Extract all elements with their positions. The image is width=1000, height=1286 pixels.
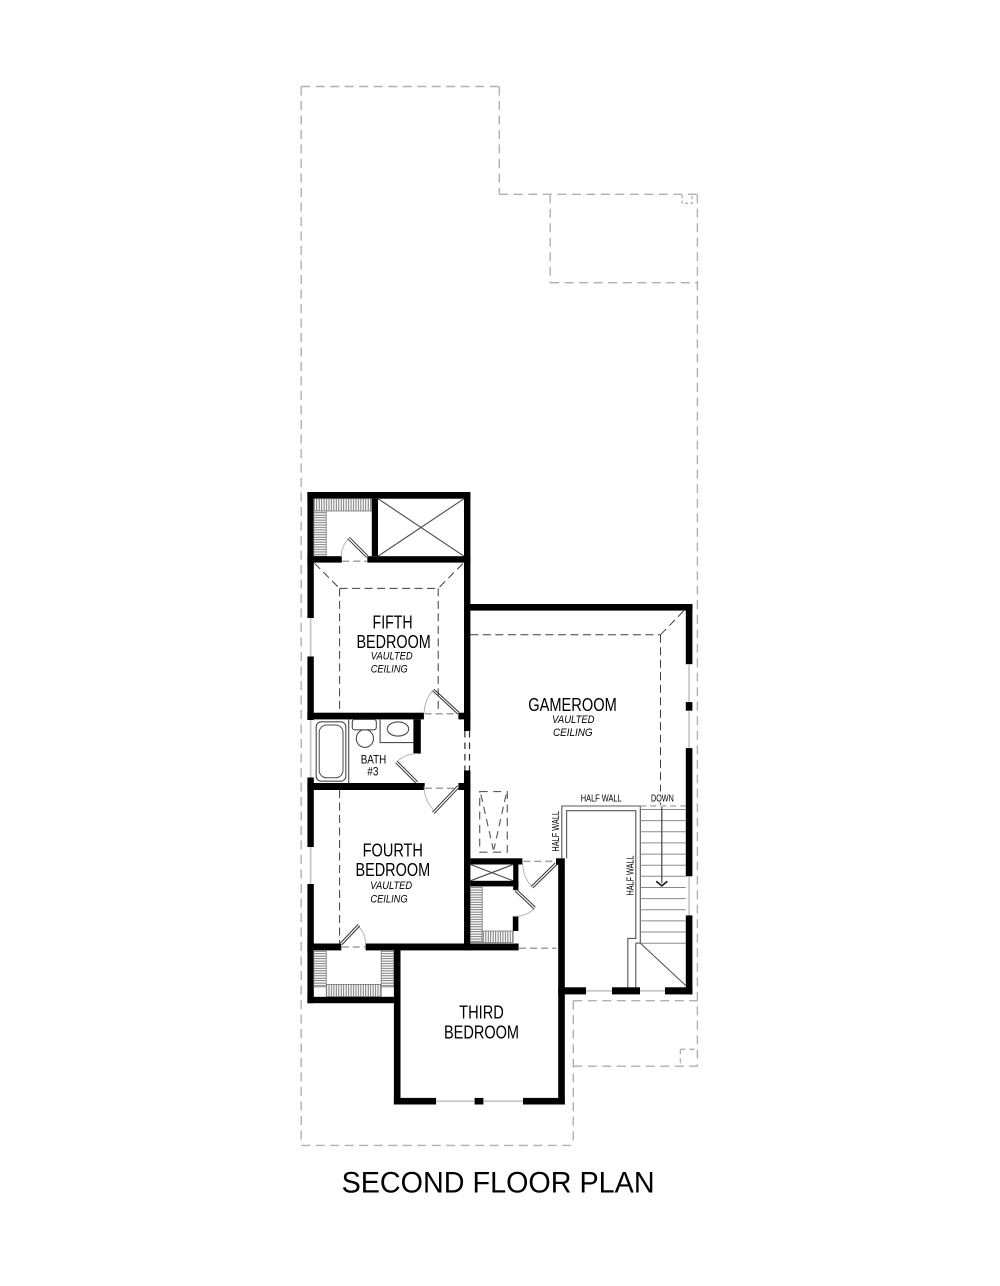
svg-text:#3: #3: [367, 765, 378, 779]
svg-text:VAULTED: VAULTED: [370, 880, 412, 892]
svg-text:HALF WALL: HALF WALL: [581, 794, 622, 805]
svg-text:FIFTH: FIFTH: [373, 612, 413, 632]
svg-text:HALF WALL: HALF WALL: [626, 855, 637, 895]
svg-text:GAMEROOM: GAMEROOM: [528, 695, 617, 715]
svg-text:HALF WALL: HALF WALL: [551, 811, 562, 852]
svg-text:BEDROOM: BEDROOM: [444, 1023, 519, 1043]
svg-text:CEILING: CEILING: [371, 664, 408, 676]
svg-text:DOWN: DOWN: [651, 793, 674, 804]
svg-text:VAULTED: VAULTED: [552, 714, 594, 726]
svg-text:SECOND FLOOR PLAN: SECOND FLOOR PLAN: [342, 1167, 655, 1200]
svg-text:BEDROOM: BEDROOM: [356, 632, 430, 652]
svg-text:FOURTH: FOURTH: [363, 840, 423, 860]
svg-text:VAULTED: VAULTED: [371, 651, 413, 663]
svg-text:CEILING: CEILING: [370, 894, 408, 906]
svg-text:CEILING: CEILING: [553, 727, 593, 739]
svg-text:BEDROOM: BEDROOM: [355, 860, 430, 880]
svg-text:THIRD: THIRD: [459, 1003, 504, 1023]
